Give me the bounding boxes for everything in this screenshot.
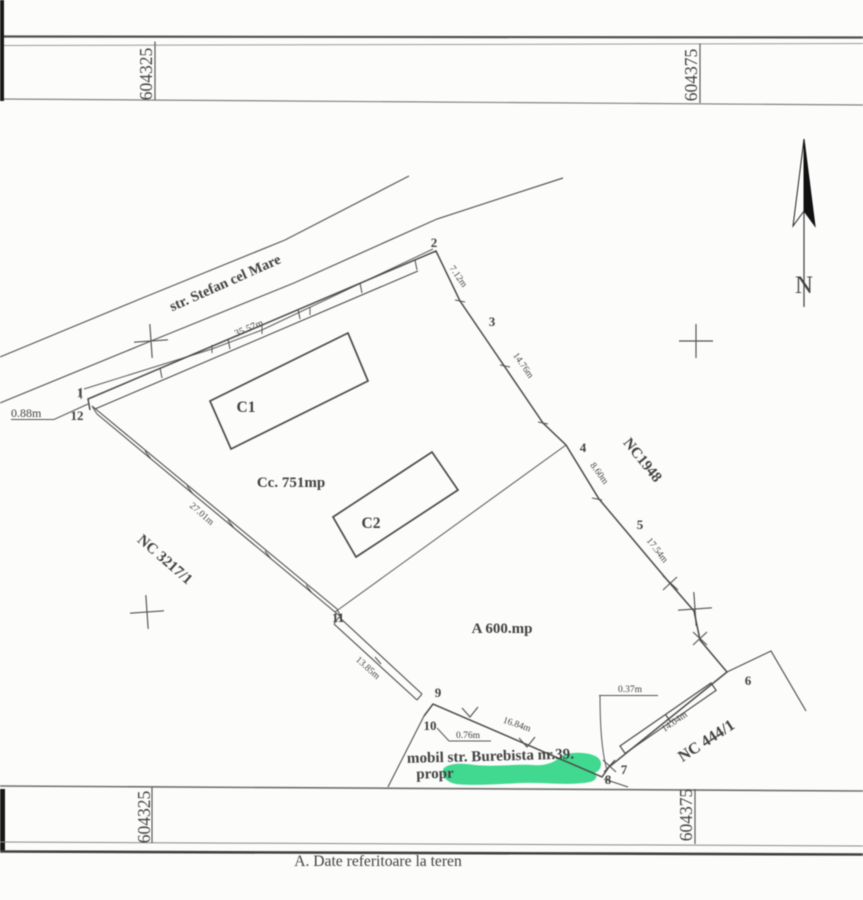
svg-text:35.57m: 35.57m: [233, 318, 265, 340]
svg-text:8.60m: 8.60m: [588, 461, 611, 487]
svg-text:0.37m: 0.37m: [618, 685, 643, 695]
svg-text:604325: 604325: [136, 48, 156, 101]
svg-text:14.76m: 14.76m: [510, 351, 535, 381]
svg-text:604375: 604375: [676, 789, 696, 842]
svg-text:4: 4: [580, 440, 587, 455]
svg-text:NC1948: NC1948: [620, 435, 665, 485]
svg-text:9: 9: [435, 685, 442, 700]
svg-text:11: 11: [332, 610, 344, 625]
svg-text:7.12m: 7.12m: [447, 264, 469, 290]
svg-text:C2: C2: [362, 515, 381, 532]
svg-text:C1: C1: [237, 399, 256, 416]
svg-text:16.84m: 16.84m: [501, 716, 532, 735]
svg-text:NC 3217/1: NC 3217/1: [134, 532, 195, 588]
svg-text:N: N: [795, 272, 813, 299]
svg-text:A 600.mp: A 600.mp: [472, 621, 533, 637]
svg-text:1: 1: [77, 385, 84, 400]
svg-text:A. Date referitoare la teren: A. Date referitoare la teren: [294, 853, 462, 870]
svg-text:propr: propr: [416, 766, 454, 783]
svg-text:NC 444/1: NC 444/1: [675, 717, 738, 766]
svg-text:7: 7: [621, 762, 628, 777]
svg-text:8: 8: [605, 772, 612, 787]
svg-text:str. Stefan cel Mare: str. Stefan cel Mare: [167, 251, 284, 315]
svg-text:17.54m: 17.54m: [644, 536, 670, 565]
svg-text:6: 6: [745, 673, 752, 688]
svg-text:604375: 604375: [681, 49, 701, 102]
svg-text:604325: 604325: [134, 791, 154, 844]
svg-text:10: 10: [424, 718, 437, 733]
svg-text:5: 5: [637, 517, 644, 532]
svg-text:Cc. 751mp: Cc. 751mp: [257, 475, 325, 491]
svg-text:3: 3: [489, 314, 496, 329]
svg-text:12: 12: [71, 408, 84, 423]
svg-text:2: 2: [431, 235, 438, 250]
svg-text:0.76m: 0.76m: [456, 731, 481, 741]
svg-text:0.88m: 0.88m: [11, 406, 42, 420]
